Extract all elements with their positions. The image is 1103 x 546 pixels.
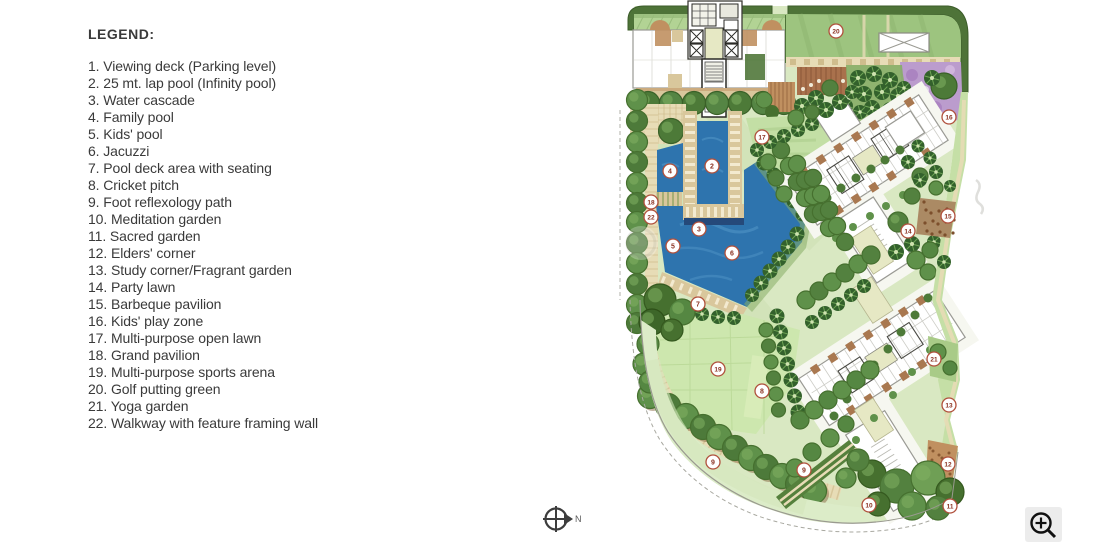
svg-text:2: 2 <box>710 163 714 170</box>
svg-text:11: 11 <box>947 503 954 510</box>
svg-text:22: 22 <box>647 214 655 221</box>
svg-text:8: 8 <box>760 388 764 395</box>
svg-text:N: N <box>575 514 582 524</box>
svg-text:9: 9 <box>802 467 806 474</box>
svg-text:19: 19 <box>714 366 722 373</box>
svg-text:17: 17 <box>758 134 766 141</box>
svg-text:20: 20 <box>832 28 840 35</box>
svg-text:10: 10 <box>865 502 873 509</box>
svg-text:14: 14 <box>904 228 912 235</box>
svg-text:5: 5 <box>671 243 675 250</box>
svg-text:16: 16 <box>945 114 953 121</box>
svg-text:18: 18 <box>647 199 655 206</box>
svg-text:4: 4 <box>668 168 672 175</box>
svg-text:3: 3 <box>697 226 701 233</box>
svg-text:13: 13 <box>945 402 953 409</box>
svg-text:15: 15 <box>944 213 952 220</box>
svg-text:6: 6 <box>730 250 734 257</box>
svg-text:7: 7 <box>696 301 700 308</box>
svg-text:21: 21 <box>930 356 938 363</box>
svg-text:9: 9 <box>711 459 715 466</box>
svg-text:12: 12 <box>944 461 952 468</box>
